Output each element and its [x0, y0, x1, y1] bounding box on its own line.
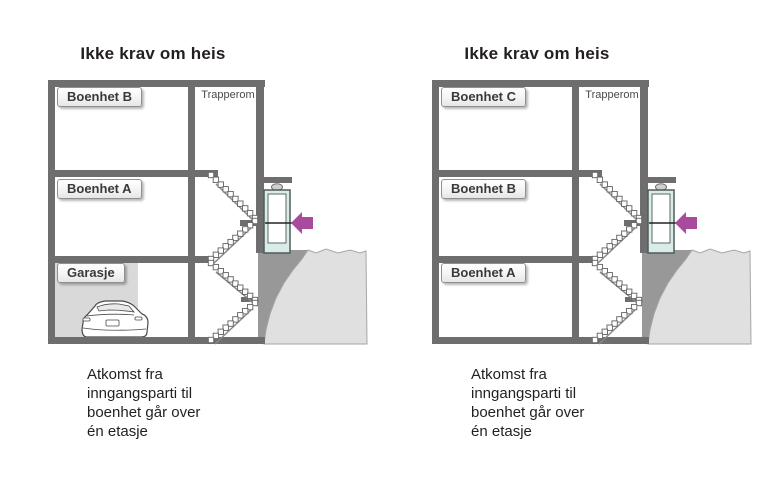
floor-label-top: Boenhet B [57, 87, 142, 107]
diagram-caption: Atkomst fra inngangsparti til boenhet gå… [471, 365, 631, 441]
stair-stringer [600, 272, 641, 306]
staircase [208, 172, 257, 344]
stair-flight [592, 172, 641, 220]
stairwell-label: Trapperom [198, 89, 258, 101]
stair-flight [592, 300, 641, 342]
diagram-title: Ikke krav om heis [417, 44, 657, 64]
arrow-left-icon [675, 212, 697, 234]
door-canopy [259, 177, 292, 183]
building-structure [432, 80, 649, 344]
roof-slab [48, 80, 265, 87]
floor-label-top: Boenhet C [441, 87, 526, 107]
diagram-three-dwellings: Ikke krav om heis Boenhet C Boenhet B Bo… [384, 0, 768, 489]
staircase [592, 172, 641, 344]
arrow-left-icon [291, 212, 313, 234]
diagram-title: Ikke krav om heis [33, 44, 273, 64]
stairwell-label: Trapperom [582, 89, 642, 101]
left-wall [432, 80, 439, 344]
stair-step [208, 337, 213, 342]
stair-stringer [600, 184, 641, 224]
floor-label-bottom: Boenhet A [441, 263, 526, 283]
right-wall [640, 80, 648, 253]
door-glass-panel [652, 194, 670, 243]
floor-label-middle: Boenhet A [57, 179, 142, 199]
door-glass-panel [268, 194, 286, 243]
stair-step [592, 337, 597, 342]
floor-slab-lower [432, 256, 597, 263]
canopy-lamp-icon [656, 184, 667, 190]
right-wall [256, 80, 264, 253]
figure-canvas: Ikke krav om heis Boenhet B Boenhet A Ga… [0, 0, 768, 489]
floor-label-middle: Boenhet B [441, 179, 526, 199]
door-canopy [643, 177, 676, 183]
car-taillight [83, 318, 90, 321]
floor-slab-upper [432, 170, 602, 177]
stair-stringer [216, 184, 257, 224]
stair-flight [208, 260, 257, 302]
canopy-lamp-icon [272, 184, 283, 190]
floor-label-bottom: Garasje [57, 263, 125, 283]
ground-slab [432, 337, 649, 344]
stair-flight [208, 172, 257, 220]
ground-slab [48, 337, 265, 344]
stair-stringer [213, 228, 251, 264]
stairwell-wall [572, 80, 579, 344]
stairwell-wall [188, 80, 195, 344]
stair-flight [208, 300, 257, 342]
floor-slab-upper [48, 170, 218, 177]
stair-flight [592, 260, 641, 302]
floor-slab-lower [48, 256, 213, 263]
stair-stringer [597, 228, 635, 264]
diagram-without-garage-access: Ikke krav om heis Boenhet B Boenhet A Ga… [0, 0, 384, 489]
stair-stringer [216, 272, 257, 306]
stair-flight [208, 218, 257, 261]
car-license-plate [106, 320, 119, 326]
stair-flight [592, 218, 641, 261]
left-wall [48, 80, 55, 344]
diagram-caption: Atkomst fra inngangsparti til boenhet gå… [87, 365, 247, 441]
roof-slab [432, 80, 649, 87]
car-taillight [135, 317, 142, 320]
